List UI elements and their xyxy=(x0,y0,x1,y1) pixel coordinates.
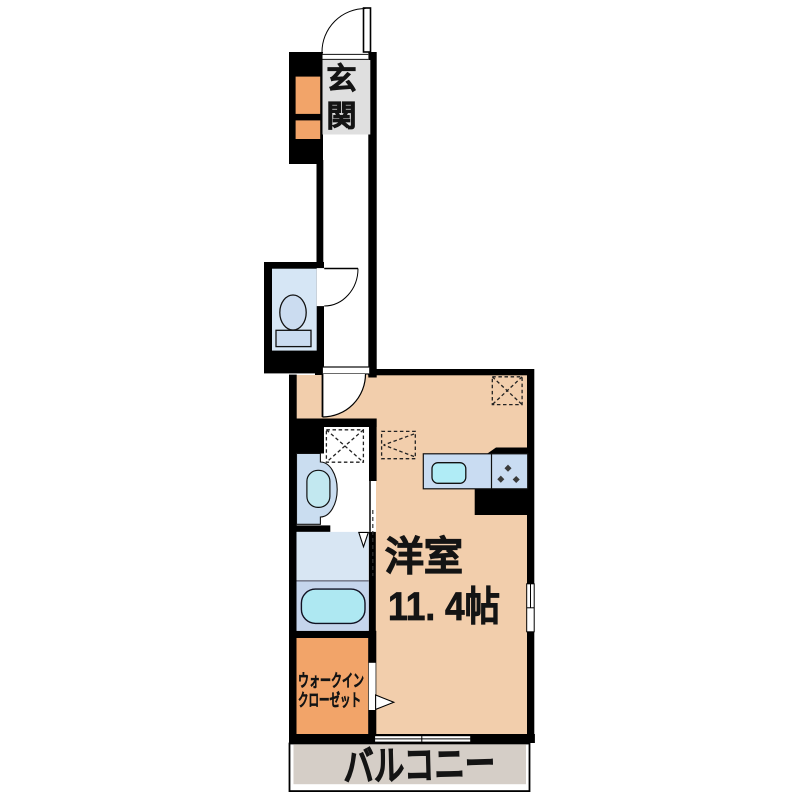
svg-text:ウォークイン: ウォークイン xyxy=(298,672,364,691)
svg-text:玄: 玄 xyxy=(327,62,357,96)
svg-text:バルコニー: バルコニー xyxy=(343,742,496,790)
svg-text:関: 関 xyxy=(327,101,357,134)
svg-text:11. 4帖: 11. 4帖 xyxy=(388,585,500,629)
svg-text:洋室: 洋室 xyxy=(385,535,463,579)
svg-text:クローゼット: クローゼット xyxy=(298,690,361,710)
